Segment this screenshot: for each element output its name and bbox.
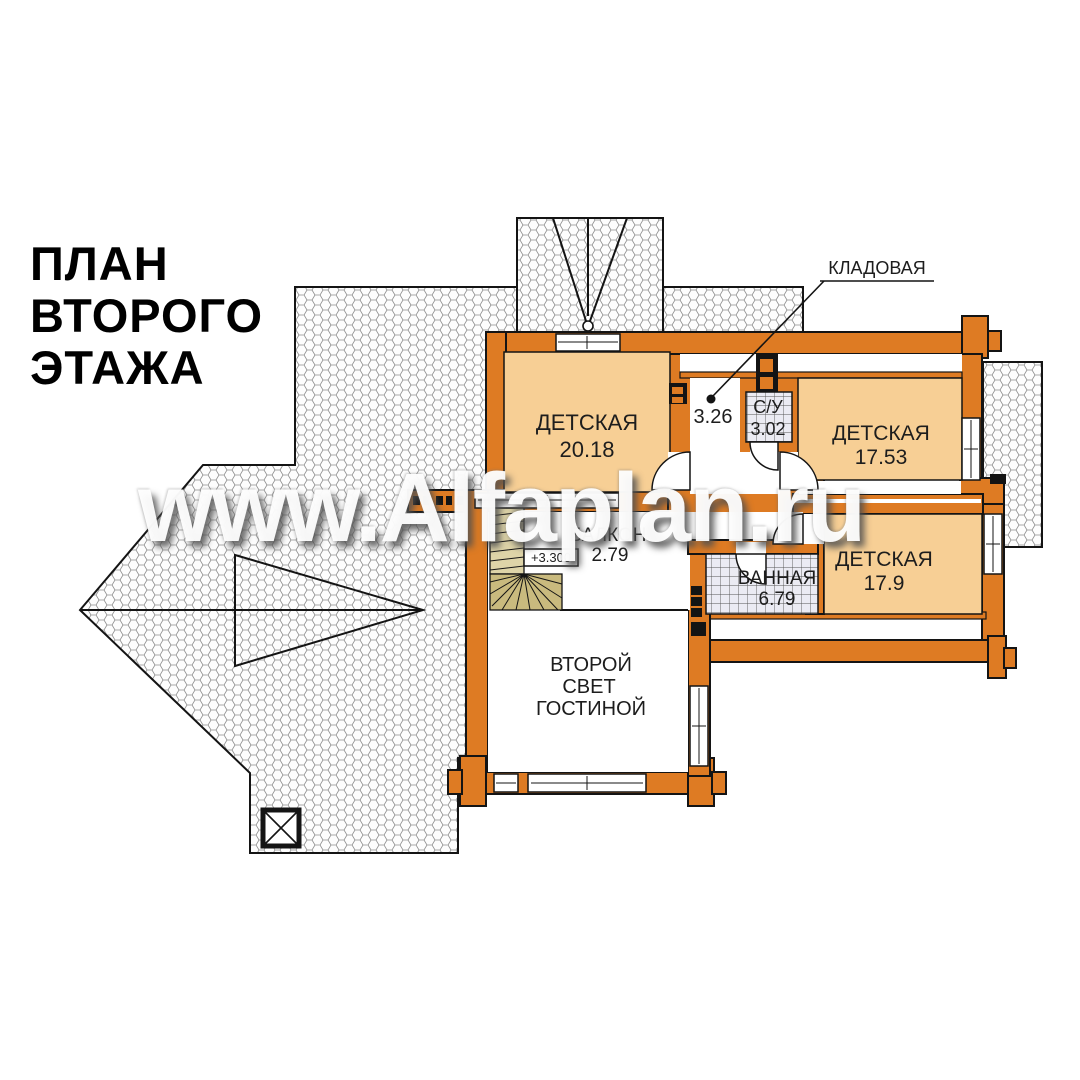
label-nursery3-area: 17.9 [864,572,905,595]
label-wc-area: 3.02 [750,419,785,439]
watermark: www.Alfaplan.ru [138,452,864,564]
window-living-right [690,686,708,766]
roof-top-band [663,287,803,333]
label-wc-name: С/У [753,397,783,417]
label-hall-area: 3.26 [694,406,733,428]
title-line-3: ЭТАЖА [30,342,263,394]
window-nursery2-right [962,418,980,480]
vent-stack [669,383,687,404]
label-nursery2-name: ДЕТСКАЯ [832,422,930,445]
storage-label: КЛАДОВАЯ [828,258,926,278]
label-void-line1: ВТОРОЙ [550,652,632,676]
window-living-bottom-1 [494,774,518,792]
flue-stack [756,354,778,392]
corner-bracket [990,474,1006,484]
title-line-1: ПЛАН [30,238,263,290]
label-nursery1-name: ДЕТСКАЯ [536,410,638,435]
floor-plan-canvas: +3.300 КЛАДОВАЯ ДЕТСКАЯ 20.18 3.26 С/У 3… [0,0,1080,1080]
label-bath-area: 6.79 [759,589,796,610]
dormer-valley-node [583,321,593,331]
roof-dormer [517,218,663,333]
window-living-bottom-2 [528,774,646,792]
window-nursery3-right [984,514,1002,574]
title-line-2: ВТОРОГО [30,290,263,342]
page-title: ПЛАН ВТОРОГО ЭТАЖА [30,238,263,394]
label-void-line2: СВЕТ [562,676,615,698]
chimney [263,810,299,846]
label-bath-name: ВАННАЯ [738,568,817,589]
window-nursery1-top [556,334,620,351]
callout-dot [707,395,716,404]
label-void-line3: ГОСТИНОЙ [536,696,646,720]
